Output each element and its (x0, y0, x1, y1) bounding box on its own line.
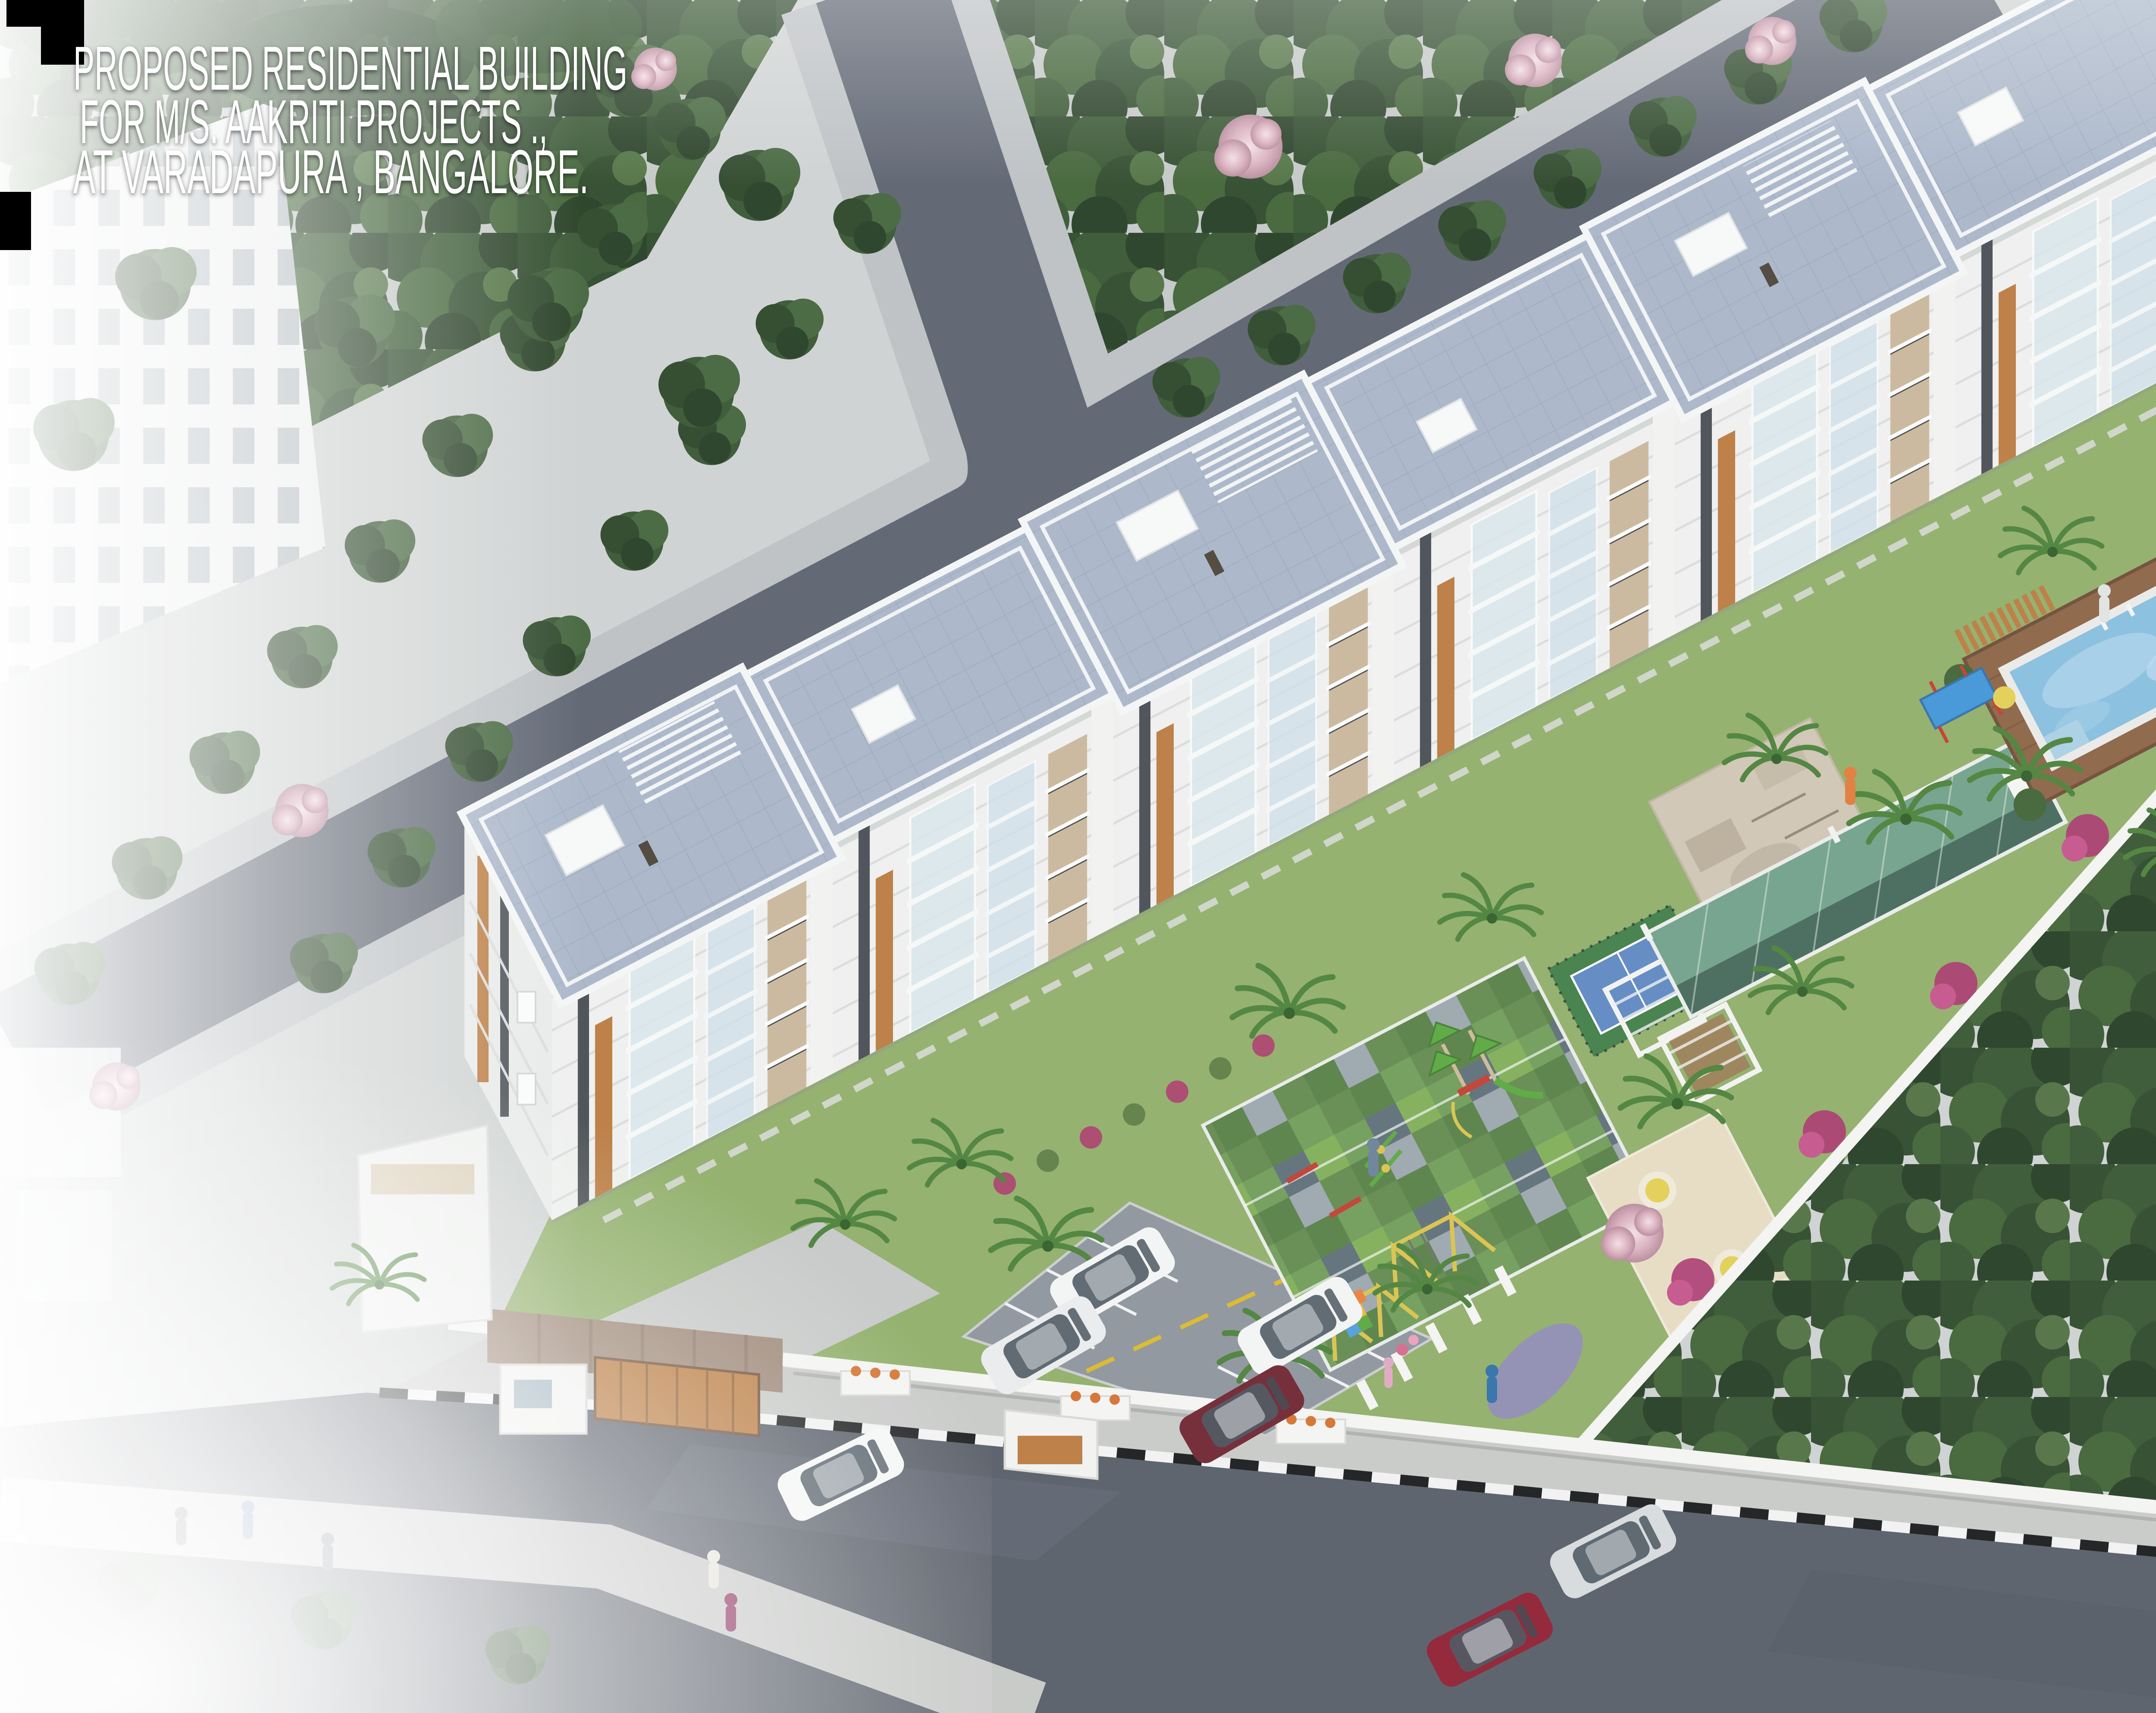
project-title-line-3: AT VARADAPURA , BANGALORE. (73, 137, 589, 207)
haze-overlays (0, 0, 2156, 1713)
project-title-block: PROPOSED RESIDENTIAL BUILDING FOR M/S. A… (73, 34, 627, 207)
aerial-architectural-render: PROPOSED RESIDENTIAL BUILDING FOR M/S. A… (0, 0, 2156, 1713)
